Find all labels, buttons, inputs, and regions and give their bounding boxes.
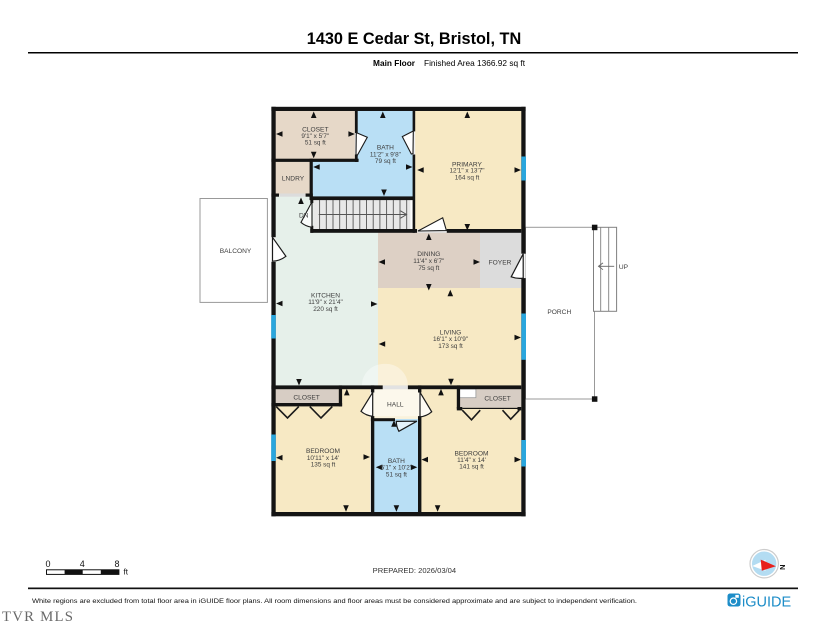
svg-text:FOYER: FOYER <box>489 260 512 267</box>
svg-text:75 sq ft: 75 sq ft <box>418 265 439 272</box>
svg-text:51 sq ft: 51 sq ft <box>386 471 407 478</box>
svg-text:N: N <box>778 564 787 569</box>
svg-text:135 sq ft: 135 sq ft <box>311 462 336 469</box>
svg-text:TVR MLS: TVR MLS <box>2 609 74 625</box>
svg-text:White regions are excluded fro: White regions are excluded from total fl… <box>32 598 637 605</box>
svg-text:ft: ft <box>124 568 129 577</box>
svg-text:Main Floor: Main Floor <box>373 58 416 68</box>
svg-text:79 sq ft: 79 sq ft <box>375 158 396 165</box>
svg-text:PREPARED: 2026/03/04: PREPARED: 2026/03/04 <box>373 566 456 575</box>
svg-text:4: 4 <box>80 559 85 569</box>
svg-text:220 sq ft: 220 sq ft <box>313 306 338 313</box>
svg-text:CLOSET: CLOSET <box>484 396 510 403</box>
svg-text:173 sq ft: 173 sq ft <box>438 343 463 350</box>
svg-text:LNDRY: LNDRY <box>282 176 305 183</box>
svg-text:Finished Area 1366.92 sq ft: Finished Area 1366.92 sq ft <box>424 58 526 68</box>
svg-text:8: 8 <box>114 559 119 569</box>
svg-text:164 sq ft: 164 sq ft <box>455 174 480 181</box>
svg-text:BALCONY: BALCONY <box>220 248 252 255</box>
svg-text:PORCH: PORCH <box>547 309 571 316</box>
svg-text:iGUIDE: iGUIDE <box>742 595 791 611</box>
svg-text:0: 0 <box>45 559 50 569</box>
svg-text:11'4" x 6'7": 11'4" x 6'7" <box>413 258 444 265</box>
svg-text:DN: DN <box>299 212 309 219</box>
svg-text:HALL: HALL <box>387 402 404 409</box>
svg-text:141 sq ft: 141 sq ft <box>459 464 484 471</box>
svg-text:51 sq ft: 51 sq ft <box>305 140 326 147</box>
svg-text:1430 E Cedar St, Bristol, TN: 1430 E Cedar St, Bristol, TN <box>307 30 521 48</box>
svg-text:CLOSET: CLOSET <box>293 395 319 402</box>
svg-text:UP: UP <box>619 264 629 271</box>
